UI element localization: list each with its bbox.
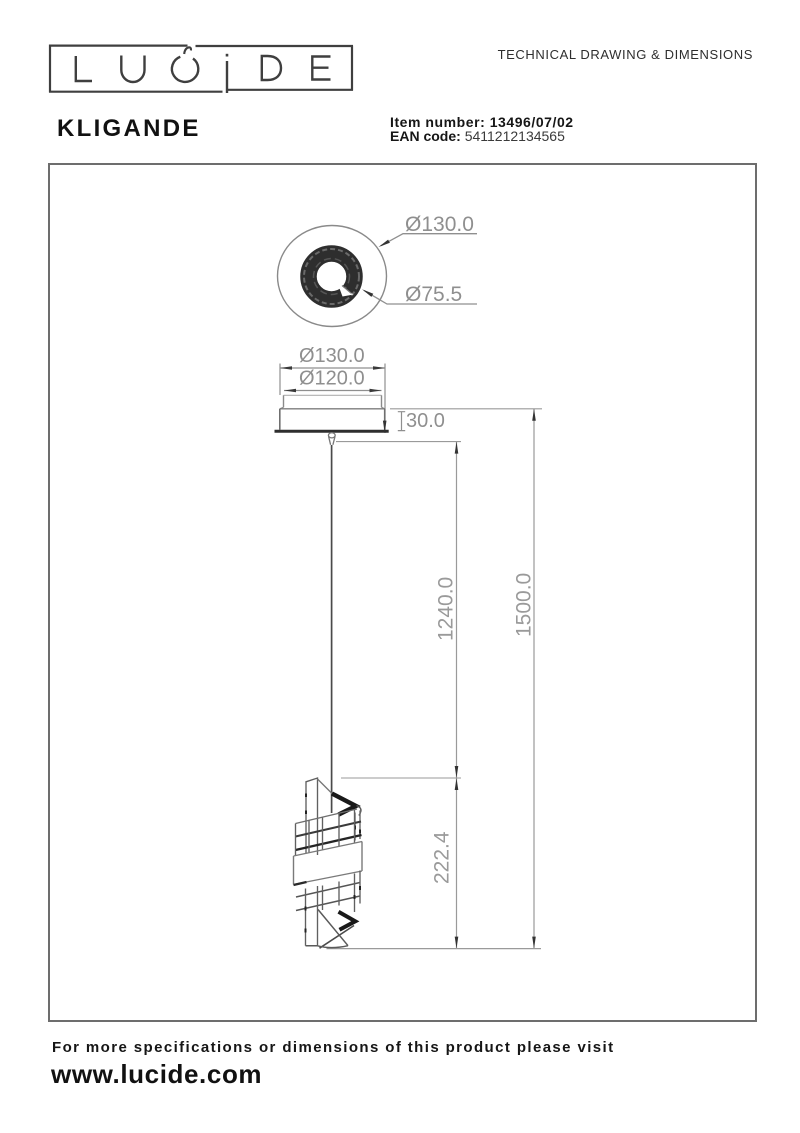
svg-text:30.0: 30.0 xyxy=(406,410,445,432)
svg-text:222.4: 222.4 xyxy=(431,831,454,884)
svg-text:1240.0: 1240.0 xyxy=(435,577,458,641)
svg-text:Ø120.0: Ø120.0 xyxy=(299,368,365,390)
svg-text:1500.0: 1500.0 xyxy=(513,573,536,637)
svg-text:Ø130.0: Ø130.0 xyxy=(299,345,365,367)
svg-text:Ø130.0: Ø130.0 xyxy=(405,213,474,236)
svg-text:Ø75.5: Ø75.5 xyxy=(405,283,462,306)
